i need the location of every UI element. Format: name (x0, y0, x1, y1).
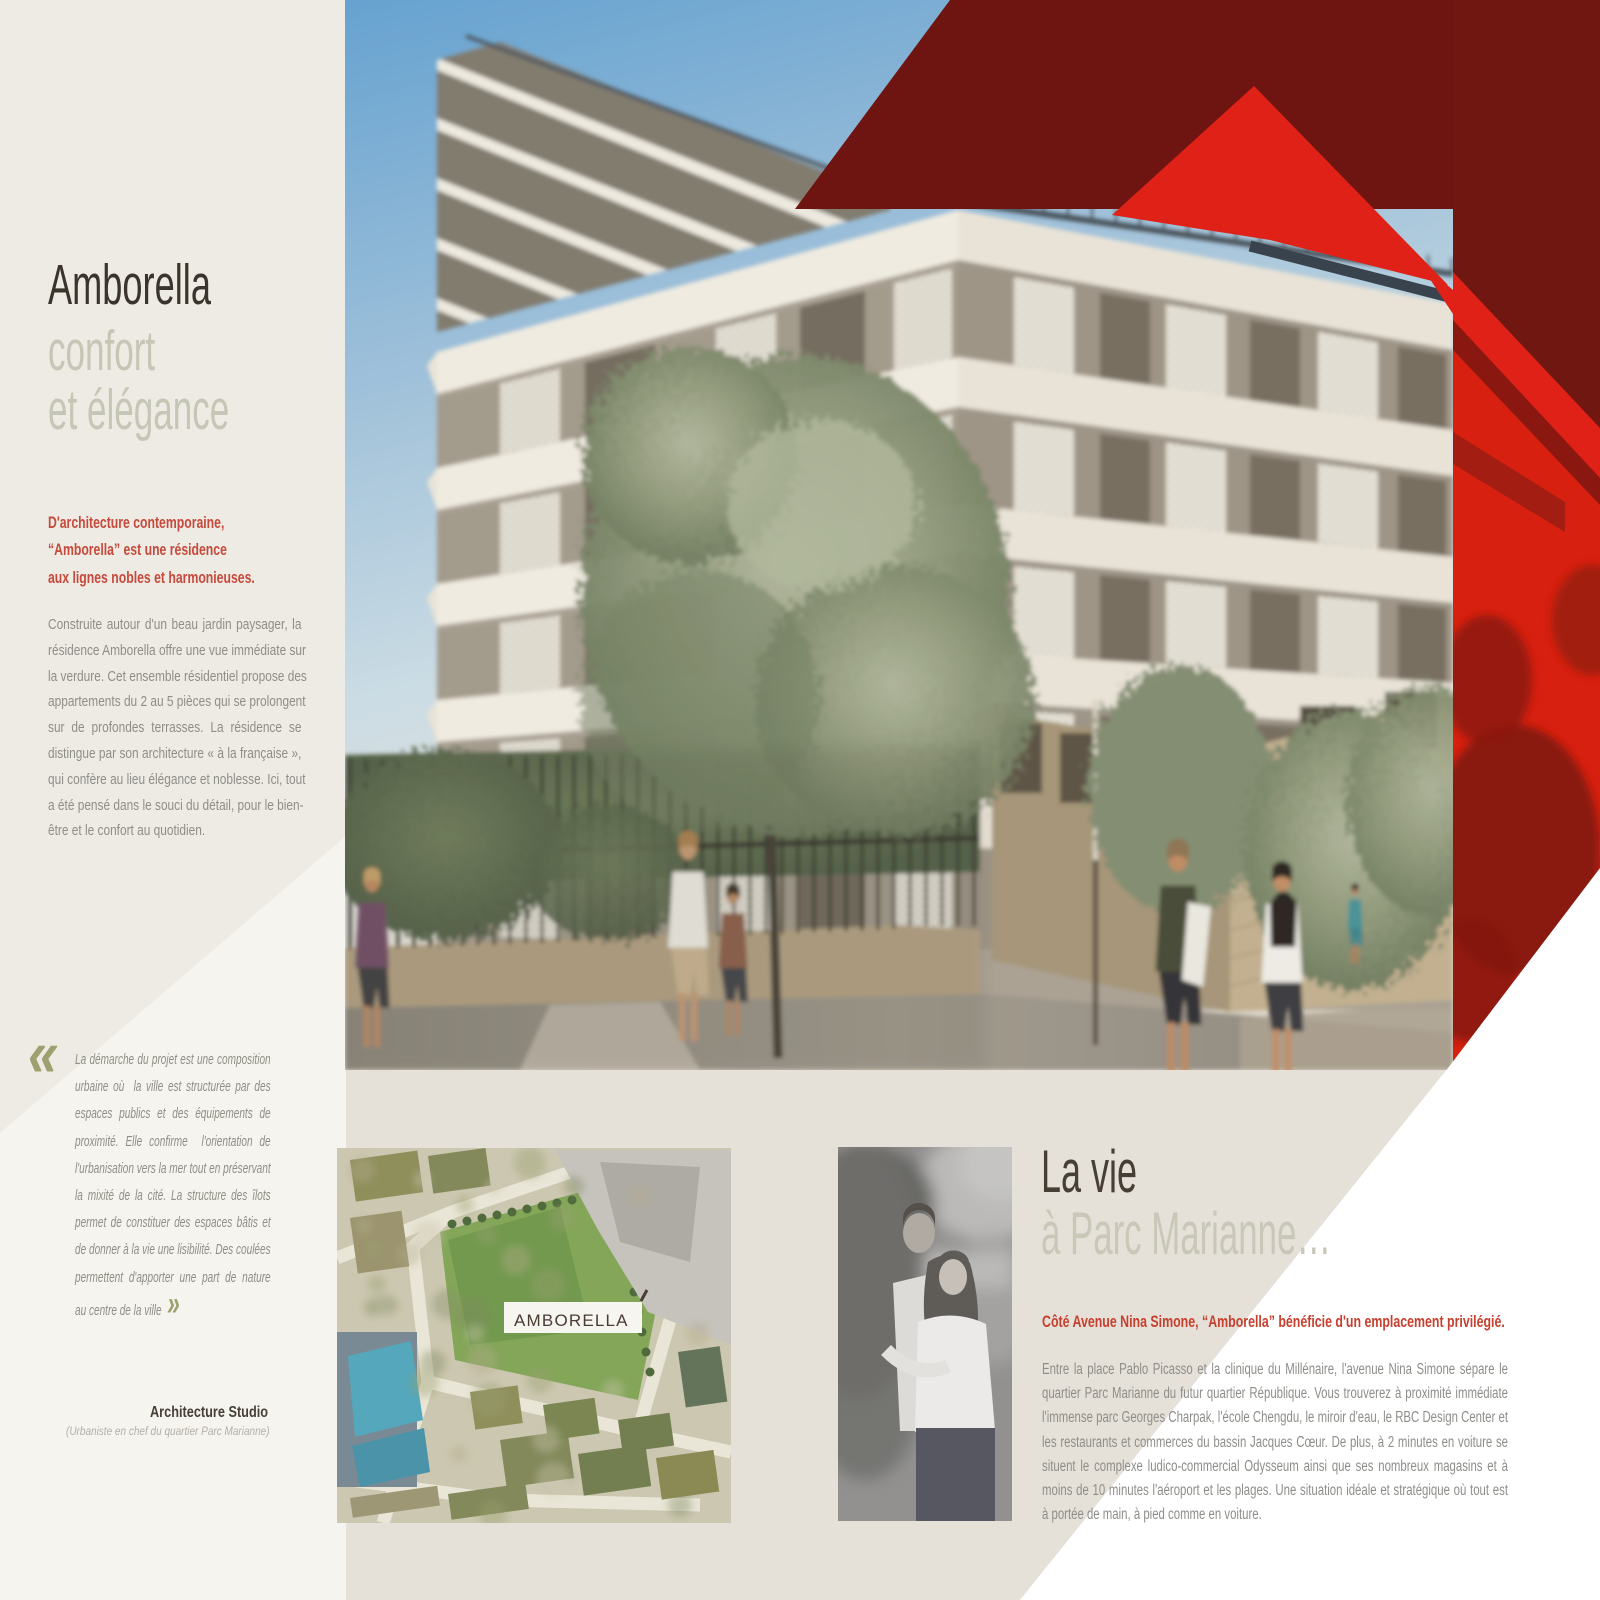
svg-text:AMBORELLA: AMBORELLA (514, 1311, 629, 1330)
